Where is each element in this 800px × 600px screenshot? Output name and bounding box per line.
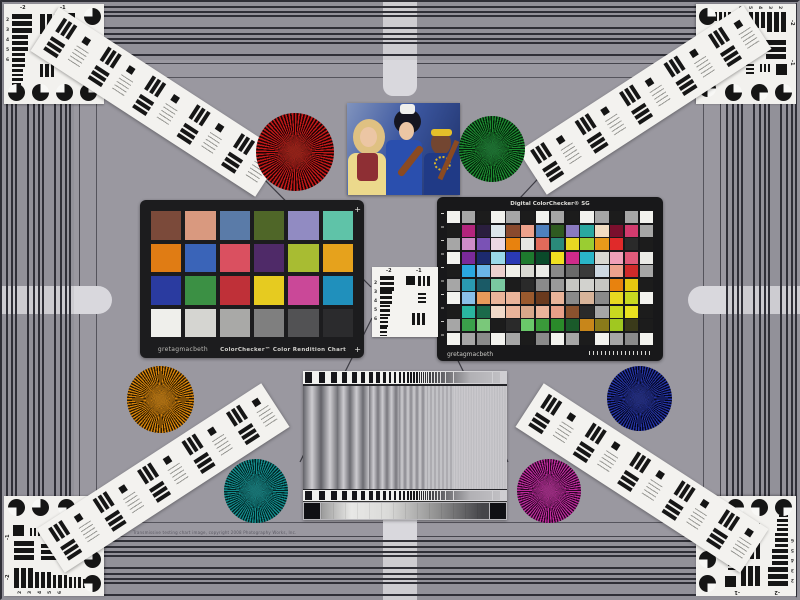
resolution-bar-group: [149, 481, 171, 503]
sweep-bar: [459, 491, 460, 500]
pinwheel-fiducial-icon: [699, 8, 716, 25]
sweep-bar: [443, 491, 444, 500]
color-patch: [151, 211, 181, 240]
strip-black-square: [252, 398, 262, 408]
color-patch: [610, 279, 623, 291]
color-patch: [491, 319, 504, 331]
sweep-bar: [425, 491, 426, 500]
sweep-bar: [470, 491, 471, 500]
registration-plus-mark: +: [354, 346, 361, 354]
resolution-bar-group: [60, 538, 82, 560]
sweep-bar: [369, 372, 373, 383]
strip-micro-text: [256, 405, 278, 428]
color-patch: [625, 319, 638, 331]
sweep-bar: [488, 372, 489, 383]
ramp-black-end: [490, 503, 506, 519]
pinwheel-fiducial-icon: [699, 575, 716, 592]
sweep-bar: [450, 372, 451, 383]
sweep-segment: [337, 386, 369, 489]
sweep-bar: [361, 491, 365, 500]
strip-micro-text: [552, 421, 574, 444]
color-patch: [521, 279, 534, 291]
sweep-bar: [491, 491, 492, 500]
color-patch: [506, 211, 519, 223]
sweep-bar: [498, 372, 499, 383]
color-patch: [521, 238, 534, 250]
usaf-group-label: -2: [386, 268, 392, 274]
resolution-bar-group: [619, 84, 641, 106]
resolution-bar-group: [663, 55, 685, 77]
resolution-bar-group: [720, 45, 742, 67]
sweep-bar: [423, 491, 424, 500]
color-patch: [254, 211, 284, 240]
color-patch: [220, 244, 250, 273]
resolution-bar-group: [380, 291, 392, 304]
sweep-bar: [478, 372, 479, 383]
resolution-bar-group: [768, 567, 788, 586]
sweep-bar: [495, 372, 496, 383]
color-patch: [640, 333, 653, 345]
sweep-bar: [483, 372, 484, 383]
resolution-bar-group: [93, 491, 115, 513]
sweep-bar: [457, 372, 458, 383]
color-patch: [595, 279, 608, 291]
sweep-bar: [497, 372, 498, 383]
color-patch: [566, 306, 579, 318]
pinwheel-fiducial-icon: [775, 499, 792, 516]
color-patch: [288, 244, 318, 273]
color-patch: [580, 211, 593, 223]
resolution-bar-group: [69, 577, 81, 588]
sweep-bar: [467, 372, 468, 383]
color-patch: [625, 211, 638, 223]
color-patch: [566, 225, 579, 237]
sweep-segment: [453, 386, 507, 489]
usaf-side-digits: 23456: [6, 16, 9, 66]
pinwheel-fiducial-icon: [32, 499, 49, 516]
sweep-bar: [452, 372, 453, 383]
sweep-bar: [448, 372, 449, 383]
color-patch: [551, 333, 564, 345]
color-patch: [595, 306, 608, 318]
sweep-bar: [410, 491, 412, 500]
strip-black-square: [170, 94, 180, 104]
resolution-bar-group: [238, 423, 260, 445]
resolution-bar-group: [53, 575, 67, 588]
sweep-bar: [447, 372, 448, 383]
sweep-bar: [394, 372, 396, 383]
usaf-black-square: [406, 276, 415, 285]
color-patch: [477, 306, 490, 318]
sweep-bar: [449, 491, 450, 500]
color-patch: [521, 225, 534, 237]
colorchecker-classic-chart: gretagmacbeth ColorChecker™ Color Rendit…: [140, 200, 364, 358]
strip-micro-text: [201, 132, 223, 155]
sweep-bar: [474, 491, 475, 500]
sweep-bar: [427, 372, 428, 383]
pinwheel-fiducial-icon: [751, 499, 768, 516]
pinwheel-fiducial-icon: [775, 84, 792, 101]
resolution-bar-group: [226, 405, 248, 427]
sweep-bar: [487, 491, 488, 500]
strip-micro-text: [168, 463, 190, 486]
resolution-bar-group: [100, 47, 122, 69]
green-star: [459, 116, 525, 182]
color-patch: [447, 292, 460, 304]
resolution-bar-group: [418, 293, 426, 303]
sweep-bar: [443, 372, 444, 383]
orange-star: [127, 366, 194, 433]
color-patch: [323, 244, 353, 273]
sweep-segment: [427, 386, 453, 489]
color-patch: [551, 279, 564, 291]
right-musician-headband: [431, 129, 452, 136]
pinwheel-fiducial-icon: [751, 84, 768, 101]
color-patch: [595, 319, 608, 331]
strip-black-square: [700, 499, 710, 509]
color-patch: [288, 211, 318, 240]
usaf-group-label: -1: [5, 534, 11, 540]
strip-micro-text: [730, 537, 752, 560]
color-patch: [610, 306, 623, 318]
color-patch: [580, 252, 593, 264]
sweep-bar: [383, 372, 386, 383]
sweep-bar: [494, 372, 495, 383]
color-patch: [491, 279, 504, 291]
resolution-bar-group: [587, 132, 609, 154]
sweep-bar: [484, 372, 485, 383]
resolution-bar-group: [221, 152, 243, 174]
sweep-bar: [487, 372, 488, 383]
sweep-bar: [468, 372, 469, 383]
color-patch: [185, 211, 215, 240]
color-patch: [462, 238, 475, 250]
color-patch: [595, 225, 608, 237]
sweep-bar: [458, 491, 459, 500]
sweep-bar: [416, 372, 417, 383]
color-patch: [491, 225, 504, 237]
sweep-bar: [461, 372, 462, 383]
sweep-bar: [376, 491, 379, 500]
sweep-bar: [480, 372, 481, 383]
sweep-bar: [481, 372, 482, 383]
color-patch: [288, 309, 318, 338]
sweep-bar: [446, 491, 447, 500]
resolution-bar-group: [137, 462, 159, 484]
sweep-bar: [450, 491, 451, 500]
color-patch: [462, 225, 475, 237]
strip-black-square: [600, 106, 610, 116]
resolution-bar-group: [43, 36, 65, 58]
usaf-group-label: -1: [734, 589, 740, 595]
strip-black-square: [74, 513, 84, 523]
color-patch: [506, 265, 519, 277]
sweep-bar: [403, 372, 405, 383]
strip-black-square: [126, 65, 136, 75]
sweep-bar: [429, 372, 430, 383]
resolution-bar-group: [193, 452, 215, 474]
sweep-bar: [490, 491, 491, 500]
sweep-bar: [458, 372, 459, 383]
sweep-bar: [410, 372, 412, 383]
resolution-bar-group: [189, 104, 211, 126]
color-patch: [506, 252, 519, 264]
sweep-segment: [303, 386, 337, 489]
center-musician-bow: [400, 104, 415, 114]
strip-micro-text: [641, 479, 663, 502]
sweep-bar: [465, 372, 466, 383]
strip-micro-text: [123, 492, 145, 515]
color-patch: [625, 279, 638, 291]
color-patch: [580, 225, 593, 237]
color-patch: [551, 238, 564, 250]
sweep-bar: [433, 491, 434, 500]
color-patch: [640, 265, 653, 277]
sweep-bar: [469, 372, 470, 383]
color-patch: [491, 252, 504, 264]
sweep-bar: [383, 491, 386, 500]
sweep-bar: [438, 491, 439, 500]
sweep-segment: [399, 386, 427, 489]
sweep-bar: [499, 372, 500, 383]
resolution-bar-group: [144, 75, 166, 97]
color-patch: [254, 244, 284, 273]
color-patch: [536, 225, 549, 237]
color-patch: [477, 279, 490, 291]
color-patch: [254, 309, 284, 338]
color-patch: [447, 333, 460, 345]
color-patch: [491, 306, 504, 318]
resolution-bar-group: [55, 18, 77, 40]
color-patch: [477, 319, 490, 331]
color-patch: [220, 276, 250, 305]
sweep-bar: [435, 491, 436, 500]
color-patch: [580, 279, 593, 291]
sweep-bar: [419, 372, 420, 383]
frequency-sweep-chart: [303, 371, 507, 520]
sweep-bar: [463, 372, 464, 383]
pinwheel-fiducial-icon: [56, 84, 73, 101]
resolution-bar-group: [746, 64, 754, 74]
sweep-bar: [433, 372, 434, 383]
strip-black-square: [207, 426, 217, 436]
resolution-bar-group: [12, 53, 25, 67]
strip-black-square: [744, 528, 754, 538]
resolution-bar-group: [530, 142, 552, 164]
sweep-bar: [432, 372, 433, 383]
color-patch: [447, 211, 460, 223]
resolution-bar-group: [12, 14, 32, 33]
sweep-bar: [452, 491, 453, 500]
sweep-bar: [421, 491, 422, 500]
sweep-bar: [486, 491, 487, 500]
color-patch: [506, 238, 519, 250]
sg-title: Digital ColorChecker® SG: [437, 201, 663, 207]
sweep-bar: [466, 491, 467, 500]
sweep-bar: [331, 372, 337, 383]
sweep-gradient-area: [303, 386, 507, 489]
colorchecker-brand: gretagmacbeth: [158, 346, 208, 353]
sweep-bar: [461, 491, 462, 500]
sg-brand: gretagmacbeth: [447, 351, 493, 358]
color-patch: [566, 238, 579, 250]
sweep-bar: [466, 372, 467, 383]
color-patch: [462, 265, 475, 277]
color-patch: [551, 319, 564, 331]
sweep-bar: [352, 491, 357, 500]
sweep-bar: [479, 491, 480, 500]
resolution-bar-group: [14, 568, 33, 588]
strip-black-square: [689, 48, 699, 58]
sweep-bar: [493, 491, 494, 500]
resolution-bar-group: [12, 35, 28, 51]
color-patch: [462, 279, 475, 291]
sweep-bar: [482, 372, 483, 383]
sweep-bar: [477, 491, 478, 500]
resolution-bar-group: [775, 533, 788, 547]
strip-micro-text: [597, 450, 619, 473]
sweep-bar: [399, 491, 401, 500]
resolution-bar-group: [706, 528, 728, 550]
strip-black-square: [163, 455, 173, 465]
sweep-bar: [425, 372, 426, 383]
color-patch: [477, 238, 490, 250]
sweep-bar: [413, 372, 414, 383]
sweep-bar: [480, 491, 481, 500]
sweep-bar: [441, 372, 442, 383]
sweep-bar: [464, 372, 465, 383]
sweep-bar: [462, 372, 463, 383]
resolution-bar-group: [542, 160, 564, 182]
resolution-bar-group: [662, 499, 684, 521]
color-patch: [477, 252, 490, 264]
color-patch: [477, 292, 490, 304]
color-patch: [551, 292, 564, 304]
sweep-bar: [465, 491, 466, 500]
sweep-bar: [454, 372, 455, 383]
color-patch: [521, 333, 534, 345]
color-patch: [595, 211, 608, 223]
resolution-bar-group: [777, 519, 788, 531]
color-patch: [536, 319, 549, 331]
sweep-bar: [430, 491, 431, 500]
usaf-group-label: -1: [416, 268, 422, 274]
strip-micro-text: [212, 434, 234, 457]
color-patch: [521, 306, 534, 318]
sweep-bar: [491, 372, 492, 383]
sweep-bar: [469, 491, 470, 500]
strip-micro-text: [686, 508, 708, 531]
pinwheel-fiducial-icon: [725, 84, 742, 101]
resolution-bar-group: [88, 65, 110, 87]
color-patch: [491, 265, 504, 277]
sweep-bar: [475, 491, 476, 500]
registration-plus-mark: +: [354, 206, 361, 214]
sweep-bar: [435, 372, 436, 383]
resolution-bar-group: [585, 423, 607, 445]
color-patch: [640, 211, 653, 223]
sweep-bar: [438, 372, 439, 383]
sweep-bar: [477, 372, 478, 383]
sweep-bar: [449, 372, 450, 383]
usaf-side-digits: 23456: [374, 279, 377, 324]
color-patch: [551, 306, 564, 318]
color-patch: [551, 211, 564, 223]
colorchecker-caption: gretagmacbeth ColorChecker™ Color Rendit…: [140, 346, 364, 353]
color-patch: [151, 276, 181, 305]
sweep-bar: [429, 491, 430, 500]
color-patch: [625, 225, 638, 237]
teal-star: [224, 459, 288, 523]
color-patch: [447, 279, 460, 291]
sweep-bar: [319, 491, 325, 500]
strip-micro-text: [650, 85, 672, 108]
color-patch: [447, 265, 460, 277]
color-patch: [521, 292, 534, 304]
color-patch: [610, 319, 623, 331]
sweep-bar: [444, 372, 445, 383]
color-patch: [536, 279, 549, 291]
sweep-bar: [496, 372, 497, 383]
sweep-bar: [369, 491, 373, 500]
color-patch: [220, 309, 250, 338]
sweep-top-bar-row: [303, 371, 507, 384]
color-patch: [323, 211, 353, 240]
resolution-bar-group: [718, 509, 740, 531]
resolution-bar-group: [35, 572, 51, 588]
resolution-bar-group: [132, 94, 154, 116]
color-patch: [506, 306, 519, 318]
color-patch: [566, 292, 579, 304]
magenta-star: [517, 459, 581, 523]
usaf-black-square: [776, 64, 787, 75]
usaf-side-digits: 23456: [791, 534, 794, 584]
strip-black-square: [734, 20, 744, 30]
camera-test-chart: -2-123456 -2-123456 -2-123456 -2-123456 …: [0, 0, 800, 600]
color-patch: [323, 309, 353, 338]
sweep-bar: [494, 491, 495, 500]
sweep-bar: [481, 491, 482, 500]
sweep-bar: [448, 491, 449, 500]
color-patch: [536, 238, 549, 250]
color-patch: [477, 333, 490, 345]
color-patch: [185, 309, 215, 338]
sweep-bar: [464, 491, 465, 500]
sweep-bar: [483, 491, 484, 500]
resolution-bar-group: [708, 27, 730, 49]
sweep-bar: [485, 491, 486, 500]
resolution-bar-group: [177, 123, 199, 145]
sweep-bar: [460, 491, 461, 500]
sweep-bar: [331, 491, 337, 500]
color-patch: [477, 225, 490, 237]
pinwheel-fiducial-icon: [84, 8, 101, 25]
color-patch: [551, 252, 564, 264]
color-patch: [580, 265, 593, 277]
color-patch: [462, 306, 475, 318]
color-patch: [462, 211, 475, 223]
color-patch: [477, 265, 490, 277]
sweep-bar: [472, 491, 473, 500]
sweep-bar: [499, 491, 500, 500]
color-patch: [566, 279, 579, 291]
resolution-bar-group: [675, 74, 697, 96]
strip-black-square: [645, 77, 655, 87]
ramp-gradient: [321, 503, 489, 519]
grayscale-ramp: [303, 501, 507, 520]
sweep-bar: [467, 491, 468, 500]
strip-micro-text: [605, 114, 627, 137]
